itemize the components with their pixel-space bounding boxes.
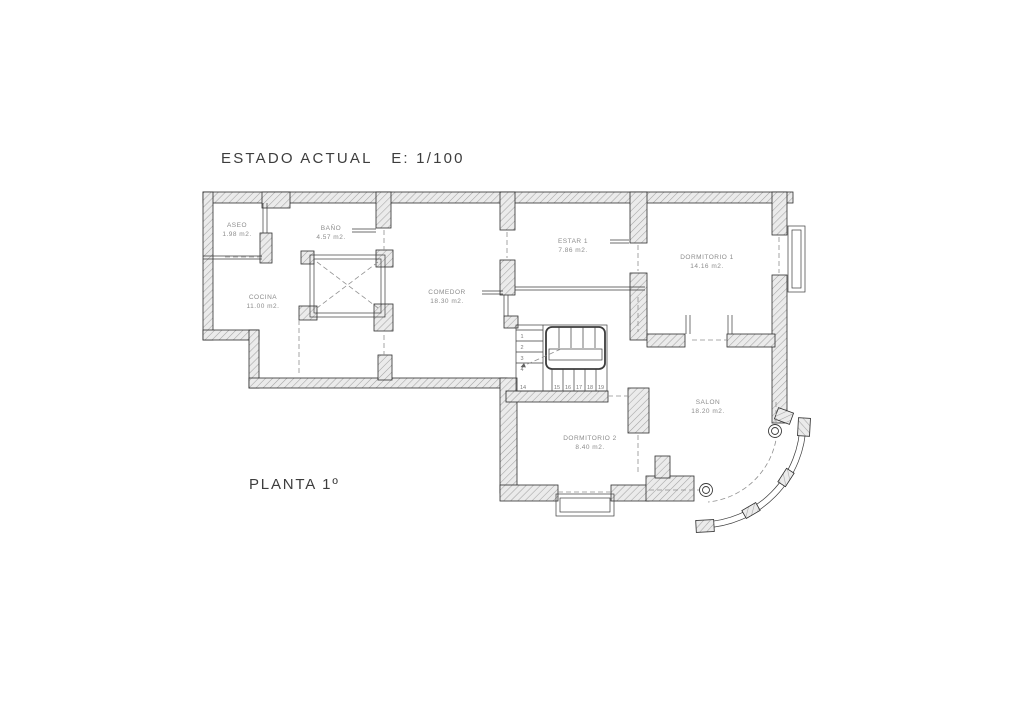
stair-step-number: 17 (576, 385, 582, 391)
shaft-cross-icon (317, 262, 378, 308)
floor-plan-page: ESTADO ACTUAL E: 1/100 (0, 0, 1024, 723)
light-well-shaft (299, 250, 393, 331)
room-label-estar1: ESTAR 1 7.86 m2. (558, 238, 588, 254)
column (769, 425, 782, 438)
stair-step-number: 15 (554, 385, 560, 391)
room-area: 4.57 m2. (316, 234, 345, 241)
floor-label: PLANTA 1º (249, 476, 340, 493)
room-label-aseo: ASEO 1.98 m2. (222, 222, 251, 238)
room-name: COMEDOR (428, 289, 465, 296)
stair-step-number: 4 (520, 367, 523, 373)
room-area: 8.40 m2. (575, 444, 604, 451)
room-name: DORMITORIO 2 (563, 435, 617, 442)
room-label-bano: BAÑO 4.57 m2. (316, 223, 345, 241)
room-area: 14.16 m2. (690, 263, 723, 270)
stair-step-number: 18 (587, 385, 593, 391)
column (700, 484, 713, 497)
room-name: ESTAR 1 (558, 238, 588, 245)
room-name: SALON (696, 399, 721, 406)
room-name: BAÑO (321, 223, 341, 232)
room-name: COCINA (249, 294, 277, 301)
thin-partitions (203, 203, 732, 334)
room-area: 1.98 m2. (222, 231, 251, 238)
floor-plan-drawing: 1 2 3 4 14 15 16 17 18 19 ASEO 1.98 m2. … (0, 0, 1024, 723)
room-label-comedor: COMEDOR 18.30 m2. (428, 289, 465, 305)
walls (203, 192, 793, 501)
staircase: 1 2 3 4 14 15 16 17 18 19 (516, 325, 607, 391)
room-area: 7.86 m2. (558, 247, 587, 254)
stair-step-number: 14 (520, 385, 526, 391)
room-area: 18.20 m2. (691, 408, 724, 415)
stair-step-number: 1 (520, 334, 523, 340)
room-label-salon: SALON 18.20 m2. (691, 399, 724, 415)
room-area: 11.00 m2. (247, 303, 280, 310)
stair-step-number: 2 (520, 345, 523, 351)
curved-bay (649, 402, 810, 532)
room-name: ASEO (227, 222, 247, 229)
stair-step-number: 3 (520, 356, 523, 362)
windows (556, 226, 805, 516)
bay-window-dormitorio2 (556, 494, 614, 516)
room-label-dormitorio1: DORMITORIO 1 14.16 m2. (680, 254, 734, 270)
stair-railing (546, 327, 605, 369)
room-label-cocina: COCINA 11.00 m2. (247, 294, 280, 310)
window-dormitorio1 (788, 226, 805, 292)
room-name: DORMITORIO 1 (680, 254, 734, 261)
stair-step-number: 16 (565, 385, 571, 391)
room-area: 18.30 m2. (430, 298, 463, 305)
stair-step-number: 19 (598, 385, 604, 391)
room-label-dormitorio2: DORMITORIO 2 8.40 m2. (563, 435, 617, 451)
